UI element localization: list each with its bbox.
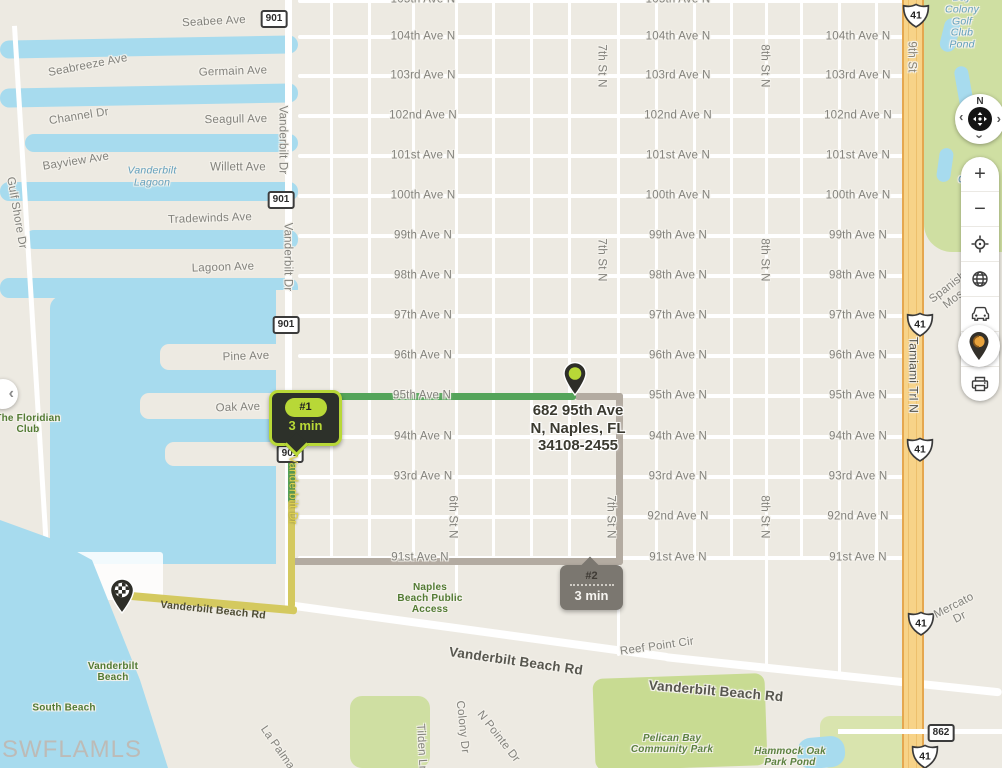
badge-divider: [570, 584, 614, 586]
svg-text:41: 41: [914, 444, 926, 455]
street-label: Colony Dr: [453, 700, 471, 754]
avenue-road: [298, 114, 908, 118]
print-button[interactable]: [961, 367, 999, 401]
canal: [25, 230, 298, 249]
avenue-road: [298, 0, 908, 3]
route-2-number: #2: [560, 570, 623, 582]
rotate-right-icon[interactable]: ›: [997, 112, 1001, 125]
printer-icon: [971, 376, 989, 392]
avenue-road: [298, 74, 908, 78]
avenue-road: [298, 194, 908, 198]
street-road: [455, 0, 458, 600]
car-icon: [971, 306, 990, 322]
street-road: [368, 0, 371, 560]
property-pin[interactable]: [562, 362, 588, 396]
svg-text:41: 41: [919, 751, 931, 762]
street-road: [530, 0, 533, 560]
route-shield-862: 862: [928, 724, 955, 742]
locate-button[interactable]: [961, 227, 999, 262]
canal: [25, 134, 298, 152]
avenue-road: [298, 475, 908, 479]
compass-control[interactable]: N › › ›: [955, 94, 1002, 144]
street-label: 7th St N: [595, 44, 608, 87]
route-1-badge[interactable]: #1 3 min: [269, 390, 342, 446]
gulf-coast-water: [0, 515, 180, 768]
street-label: Seagull Ave: [205, 113, 268, 127]
plus-icon: +: [974, 163, 986, 186]
route-2-badge[interactable]: #2 3 min: [560, 565, 623, 610]
gulf-shore-dr-road: [12, 26, 51, 585]
us-route-shield-41: 41: [901, 2, 931, 34]
avenue-road: [298, 314, 908, 318]
street-label: Channel Dr: [48, 106, 109, 128]
street-label: Naples Beach Public Access: [397, 582, 462, 616]
park-area: [350, 696, 430, 768]
street-road: [693, 0, 696, 560]
street-road: [800, 0, 803, 560]
street-road: [730, 0, 733, 560]
minus-icon: −: [974, 198, 986, 221]
canal: [0, 35, 298, 58]
street-label: N Pointe Dr: [474, 709, 522, 766]
avenue-road: [298, 35, 908, 39]
address-line: 682 95th Ave: [516, 402, 640, 420]
street-label: Seabee Ave: [182, 14, 246, 30]
us-route-shield-41: 41: [905, 311, 935, 343]
collapse-panel-button[interactable]: ‹: [0, 379, 18, 409]
street-road: [412, 0, 415, 560]
route-shield-901: 901: [261, 10, 288, 28]
route-862-road: [838, 729, 1002, 734]
us-41-highway: [902, 0, 924, 768]
globe-icon: [971, 270, 989, 288]
zoom-in-button[interactable]: +: [961, 157, 999, 192]
route-1-duration: 3 min: [272, 418, 339, 433]
route-1-number: #1: [285, 398, 327, 417]
street-label: Mercato Dr: [931, 590, 983, 633]
hammock-oak-pond: [796, 735, 847, 768]
street-road: [875, 0, 878, 560]
pan-icon: [973, 112, 987, 126]
chevron-left-icon: ‹: [9, 385, 14, 403]
street-label: Willett Ave: [210, 162, 266, 175]
us-route-shield-41: 41: [906, 610, 936, 642]
destination-checkered-pin[interactable]: [108, 578, 136, 614]
svg-text:41: 41: [910, 10, 922, 21]
orange-pin-icon: [968, 331, 990, 361]
street-road: [330, 0, 333, 560]
address-line: N, Naples, FL: [516, 420, 640, 438]
mls-watermark: SWFLAMLS: [2, 736, 142, 764]
property-address-label: 682 95th Ave N, Naples, FL 34108-2455: [516, 402, 640, 455]
street-label: Germain Ave: [199, 64, 268, 79]
avenue-road: [298, 274, 908, 278]
street-road: [838, 0, 841, 676]
street-road: [655, 0, 658, 560]
street-road: [568, 0, 571, 560]
tilt-down-icon[interactable]: ›: [974, 134, 987, 138]
us-route-shield-41: 41: [905, 436, 935, 468]
street-label: 8th St N: [758, 44, 771, 87]
locate-icon: [971, 235, 989, 253]
pelican-bay-park-area: [592, 673, 767, 768]
vanderbilt-beach-rd-road: [287, 601, 671, 661]
street-label: Vanderbilt Beach Rd: [448, 644, 584, 678]
canal: [0, 182, 298, 201]
address-line: 34108-2455: [516, 437, 640, 455]
street-road: [765, 0, 768, 668]
street-label: Lagoon Ave: [192, 260, 255, 275]
street-road: [492, 0, 495, 560]
route-map[interactable]: 682 95th Ave N, Naples, FL 34108-2455 #1…: [0, 0, 1002, 768]
svg-text:41: 41: [915, 618, 927, 629]
avenue-road: [298, 154, 908, 158]
pan-reset-button[interactable]: [968, 107, 992, 131]
svg-text:41: 41: [914, 319, 926, 330]
street-label: Bayview Ave: [42, 150, 110, 173]
street-label: Tradewinds Ave: [168, 211, 252, 227]
route-shield-901: 901: [273, 316, 300, 334]
basemap-button[interactable]: [961, 262, 999, 297]
route-2-duration: 3 min: [560, 588, 623, 603]
avenue-road: [298, 354, 908, 358]
us-route-shield-41: 41: [910, 743, 940, 768]
street-label: La Palma: [257, 724, 296, 768]
avenue-road: [298, 234, 908, 238]
route-shield-901: 901: [268, 191, 295, 209]
compass-north-label: N: [976, 96, 983, 107]
rotate-left-icon[interactable]: ›: [959, 112, 963, 125]
canal: [0, 83, 298, 107]
zoom-out-button[interactable]: −: [961, 192, 999, 227]
canal: [0, 278, 298, 298]
poi-marker-button[interactable]: [958, 325, 1000, 367]
route-2-segment[interactable]: [292, 558, 623, 565]
route-1-segment[interactable]: [288, 500, 295, 608]
avenue-road: [298, 515, 908, 519]
